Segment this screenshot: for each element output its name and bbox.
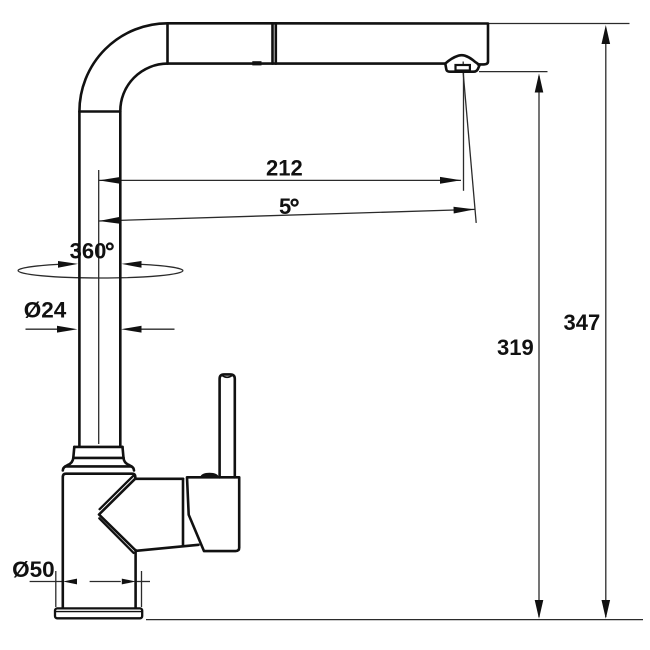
svg-text:360: 360 — [70, 239, 107, 264]
svg-text:212: 212 — [266, 156, 303, 181]
svg-text:5: 5 — [279, 194, 291, 219]
svg-text:Ø50: Ø50 — [12, 557, 55, 582]
svg-text:Ø24: Ø24 — [24, 297, 67, 322]
svg-text:347: 347 — [564, 310, 601, 335]
svg-text:319: 319 — [497, 335, 534, 360]
